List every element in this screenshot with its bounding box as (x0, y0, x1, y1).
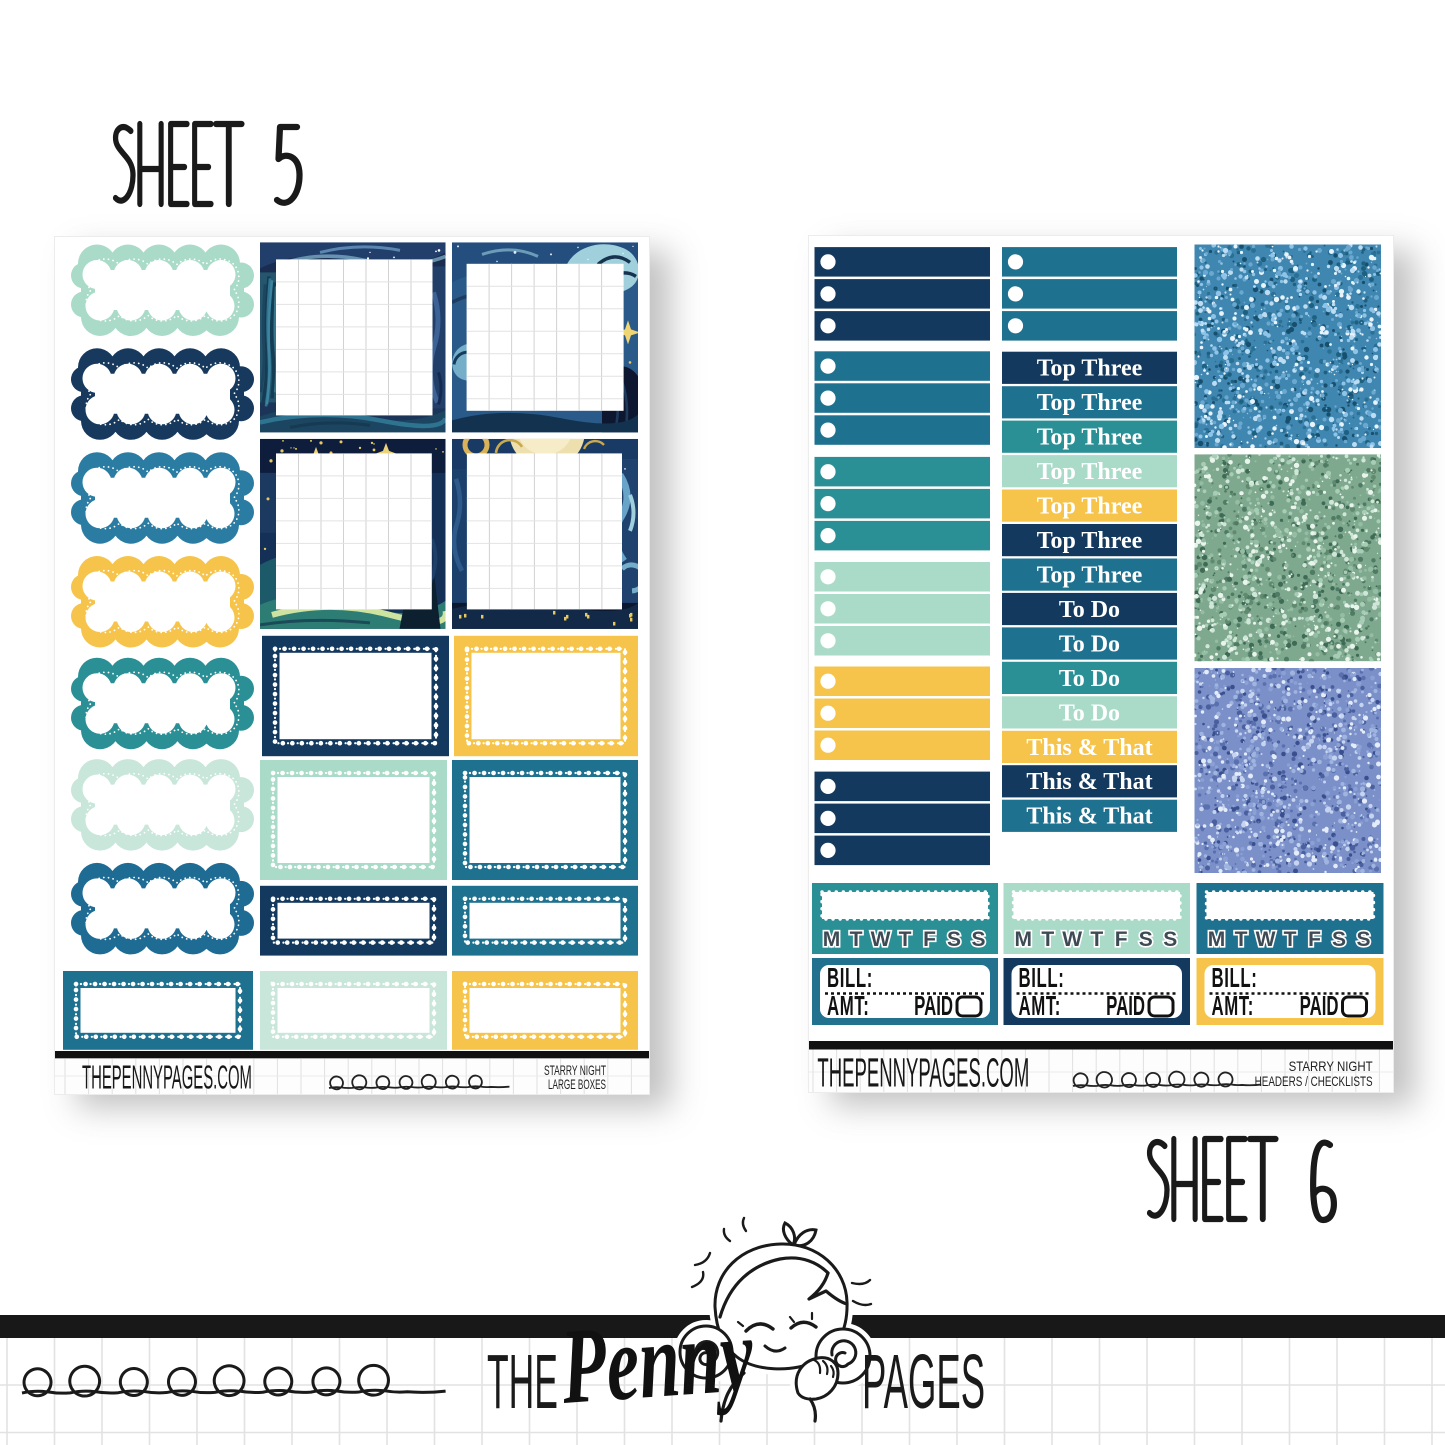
svg-text:PAGES: PAGES (862, 1338, 985, 1425)
svg-text:THE: THE (487, 1339, 558, 1425)
svg-text:Penny: Penny (557, 1294, 758, 1426)
